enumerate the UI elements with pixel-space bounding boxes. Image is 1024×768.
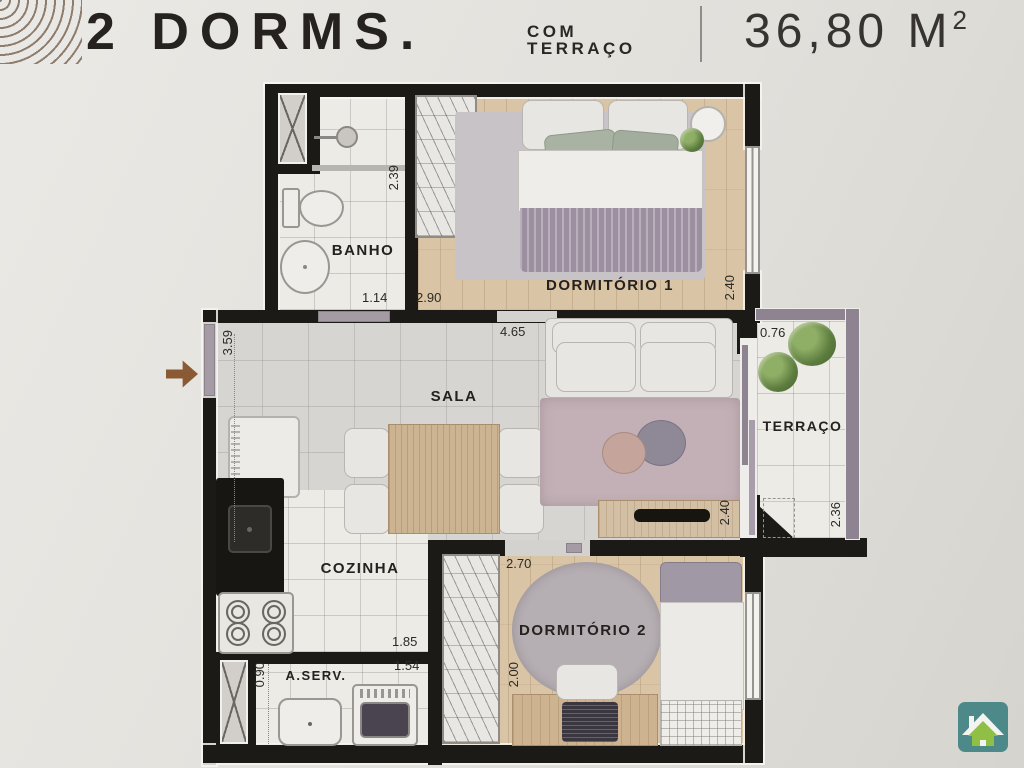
burner-icon <box>226 622 250 646</box>
dim-terraco-width: 0.76 <box>760 325 785 340</box>
terraco-label: TERRAÇO <box>755 418 850 434</box>
dim-sala-right-height: 2.40 <box>717 500 732 525</box>
plan-area-value: 36,80 M <box>744 5 952 58</box>
dim-dorm2-width: 2.70 <box>506 556 531 571</box>
laptop-icon <box>562 702 618 742</box>
dim-aserv-height: 0.90 <box>252 662 267 687</box>
entrance-door <box>204 324 215 396</box>
sala-label: SALA <box>422 388 486 405</box>
header-divider <box>700 6 702 62</box>
sink-drain-icon <box>303 265 307 269</box>
tv-icon <box>634 509 710 522</box>
shower-head-icon <box>336 126 358 148</box>
burner-icon <box>226 600 250 624</box>
dim-sala-width: 4.65 <box>500 324 525 339</box>
plan-subtitle-line1: COM <box>527 23 636 40</box>
dorm2-window <box>745 592 761 700</box>
dim-dotted-line <box>268 664 269 744</box>
dim-sala-height: 3.59 <box>220 330 235 355</box>
plan-area-sup: 2 <box>952 5 966 35</box>
shaft-duct-icon <box>278 93 307 164</box>
entrance-arrow-icon <box>166 358 198 390</box>
bed-sheet-icon <box>518 150 703 212</box>
cozinha-label: COZINHA <box>318 560 402 577</box>
plaid-pillow-icon <box>660 700 742 746</box>
single-bed-sheet-icon <box>660 602 744 710</box>
tub-drain-icon <box>308 722 312 726</box>
floorplan-poster: 2 DORMS. COM TERRAÇO 36,80 M2 <box>0 0 1024 768</box>
burner-icon <box>262 600 286 624</box>
wall <box>428 540 442 765</box>
plan-subtitle-line2: TERRAÇO <box>527 40 636 57</box>
dorm2-door <box>566 543 582 553</box>
plant-icon <box>758 352 798 392</box>
coffee-table-icon <box>602 432 646 474</box>
dim-dotted-line <box>234 334 235 542</box>
dining-chair-icon <box>498 428 544 478</box>
washer-door-icon <box>360 702 410 738</box>
dim-dorm2-height: 2.00 <box>506 662 521 687</box>
plan-area: 36,80 M2 <box>744 4 967 59</box>
dim-aserv-width: 1.54 <box>394 658 419 673</box>
wall <box>203 745 763 763</box>
plan-subtitle: COM TERRAÇO <box>527 23 636 57</box>
green-house-logo-svg <box>958 702 1008 752</box>
terrace-slider-panel <box>742 345 748 465</box>
plant-icon <box>680 128 704 152</box>
terrace-slider-panel <box>749 420 755 535</box>
toilet-tank-icon <box>282 188 300 228</box>
dorm1-label: DORMITÓRIO 1 <box>545 277 675 294</box>
sofa-seat-icon <box>640 342 716 392</box>
dining-chair-icon <box>498 484 544 534</box>
wall <box>745 84 760 148</box>
stove-icon <box>218 592 294 654</box>
sofa-seat-icon <box>556 342 636 392</box>
dorm1-window <box>745 146 760 274</box>
dorm2-wardrobe-icon <box>442 554 500 744</box>
plan-title: 2 DORMS. <box>86 2 425 62</box>
terrace-dashed-outline <box>763 498 795 538</box>
sink-drain-icon <box>247 527 252 532</box>
dim-banho-height: 2.39 <box>386 165 401 190</box>
dim-terraco-height: 2.36 <box>828 502 843 527</box>
wall <box>265 84 760 97</box>
aserv-label: A.SERV. <box>283 668 349 683</box>
plant-icon <box>788 322 836 366</box>
banho-label: BANHO <box>318 242 408 259</box>
dim-dorm1-width: 2.90 <box>416 290 441 305</box>
banho-door <box>318 311 390 322</box>
dining-chair-icon <box>344 428 390 478</box>
brand-arcs-icon <box>0 0 82 64</box>
burner-icon <box>262 622 286 646</box>
shaft-duct-icon <box>220 660 248 744</box>
washer-panel-icon <box>360 689 410 698</box>
desk-chair-icon <box>556 664 618 700</box>
bed-blanket-icon <box>520 208 702 272</box>
dining-table-icon <box>388 424 500 534</box>
dorm2-label: DORMITÓRIO 2 <box>518 622 648 639</box>
single-bed-bolster-icon <box>660 562 742 606</box>
green-house-logo <box>958 702 1008 752</box>
dim-cozinha-width: 1.85 <box>392 634 417 649</box>
dim-banho-width: 1.14 <box>362 290 387 305</box>
dim-dorm1-height: 2.40 <box>722 275 737 300</box>
dining-chair-icon <box>344 484 390 534</box>
